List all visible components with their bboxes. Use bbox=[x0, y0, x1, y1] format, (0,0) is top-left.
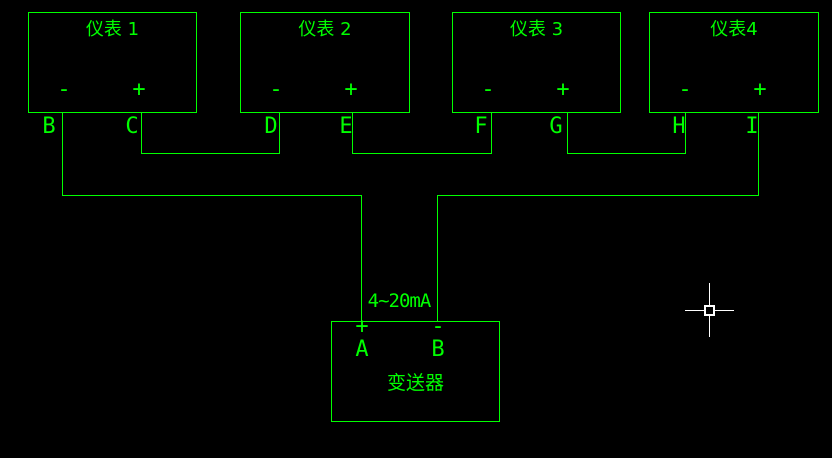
node-label-B[interactable]: B bbox=[41, 116, 57, 138]
instrument-box-4[interactable]: 仪表4 - + bbox=[649, 12, 819, 113]
instrument-3-title[interactable]: 仪表 3 bbox=[453, 20, 620, 40]
instrument-4-title[interactable]: 仪表4 bbox=[650, 20, 818, 40]
instrument-1-minus-terminal[interactable]: - bbox=[56, 79, 72, 101]
instrument-2-plus-terminal[interactable]: + bbox=[343, 79, 359, 101]
instrument-1-title[interactable]: 仪表 1 bbox=[29, 20, 196, 40]
wire-i-feed[interactable] bbox=[437, 195, 438, 322]
node-label-F[interactable]: F bbox=[473, 116, 489, 138]
instrument-4-minus-terminal[interactable]: - bbox=[677, 79, 693, 101]
instrument-box-3[interactable]: 仪表 3 - + bbox=[452, 12, 621, 113]
cad-canvas[interactable]: 仪表 1 - + 仪表 2 - + 仪表 3 - + 仪表4 - + B C D… bbox=[0, 0, 832, 458]
instrument-3-minus-terminal[interactable]: - bbox=[480, 79, 496, 101]
transmitter-box[interactable]: + - A B 变送器 bbox=[331, 321, 500, 422]
wire-c-drop[interactable] bbox=[141, 112, 142, 154]
crosshair-pickbox-icon bbox=[704, 305, 715, 316]
wire-ef-run[interactable] bbox=[352, 153, 492, 154]
wire-cd-run[interactable] bbox=[141, 153, 280, 154]
wire-d-rise[interactable] bbox=[279, 112, 280, 154]
node-label-C[interactable]: C bbox=[124, 116, 140, 138]
transmitter-plus-terminal[interactable]: + bbox=[354, 316, 370, 338]
wire-i-run[interactable] bbox=[437, 195, 759, 196]
wire-b-run[interactable] bbox=[62, 195, 362, 196]
wire-e-drop[interactable] bbox=[352, 112, 353, 154]
instrument-2-minus-terminal[interactable]: - bbox=[268, 79, 284, 101]
transmitter-minus-terminal[interactable]: - bbox=[430, 316, 446, 338]
node-label-G[interactable]: G bbox=[548, 116, 564, 138]
wire-gh-run[interactable] bbox=[567, 153, 686, 154]
instrument-2-title[interactable]: 仪表 2 bbox=[241, 20, 409, 40]
instrument-1-plus-terminal[interactable]: + bbox=[131, 79, 147, 101]
signal-range-label[interactable]: 4~20mA bbox=[361, 291, 437, 312]
wire-b-drop[interactable] bbox=[62, 112, 63, 196]
wire-f-rise[interactable] bbox=[491, 112, 492, 154]
node-label-D[interactable]: D bbox=[263, 116, 279, 138]
instrument-3-plus-terminal[interactable]: + bbox=[555, 79, 571, 101]
wire-h-rise[interactable] bbox=[685, 112, 686, 154]
transmitter-terminal-label-A[interactable]: A bbox=[354, 339, 370, 361]
instrument-4-plus-terminal[interactable]: + bbox=[752, 79, 768, 101]
transmitter-title[interactable]: 变送器 bbox=[332, 372, 499, 395]
instrument-box-1[interactable]: 仪表 1 - + bbox=[28, 12, 197, 113]
instrument-box-2[interactable]: 仪表 2 - + bbox=[240, 12, 410, 113]
wire-i-drop[interactable] bbox=[758, 112, 759, 196]
wire-g-drop[interactable] bbox=[567, 112, 568, 154]
transmitter-terminal-label-B[interactable]: B bbox=[430, 339, 446, 361]
